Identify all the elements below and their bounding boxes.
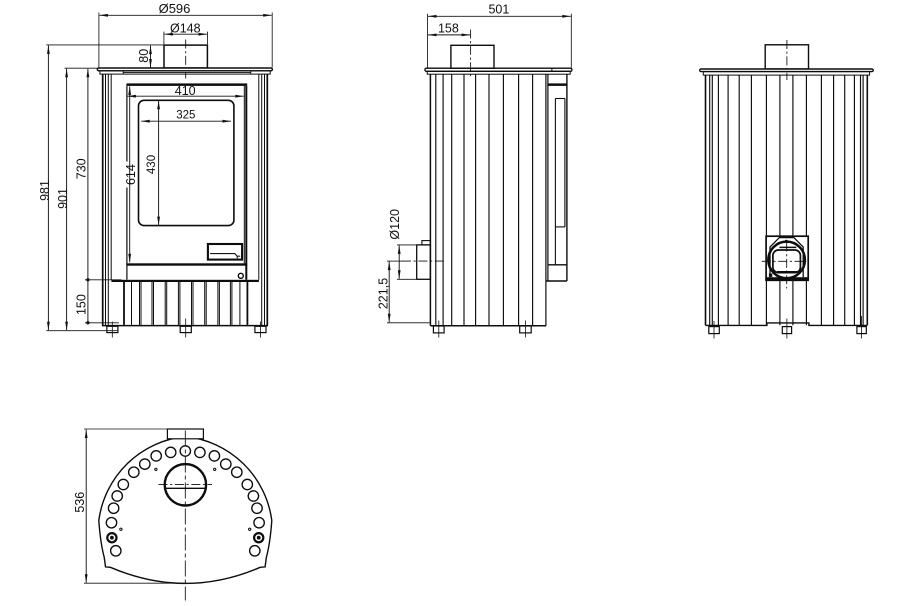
svg-text:221,5: 221,5 bbox=[376, 278, 390, 309]
svg-text:325: 325 bbox=[176, 110, 195, 122]
svg-text:430: 430 bbox=[146, 155, 158, 174]
svg-text:614: 614 bbox=[124, 164, 138, 185]
svg-text:501: 501 bbox=[488, 2, 509, 16]
svg-text:Ø120: Ø120 bbox=[388, 209, 402, 240]
svg-text:901: 901 bbox=[56, 188, 70, 209]
svg-text:981: 981 bbox=[38, 180, 52, 201]
svg-text:150: 150 bbox=[75, 294, 89, 315]
svg-text:536: 536 bbox=[73, 492, 87, 513]
svg-text:158: 158 bbox=[438, 21, 459, 35]
svg-text:410: 410 bbox=[175, 84, 196, 98]
svg-text:80: 80 bbox=[137, 49, 151, 63]
svg-text:730: 730 bbox=[75, 158, 89, 179]
svg-text:Ø148: Ø148 bbox=[170, 22, 201, 36]
svg-text:Ø596: Ø596 bbox=[159, 1, 191, 16]
